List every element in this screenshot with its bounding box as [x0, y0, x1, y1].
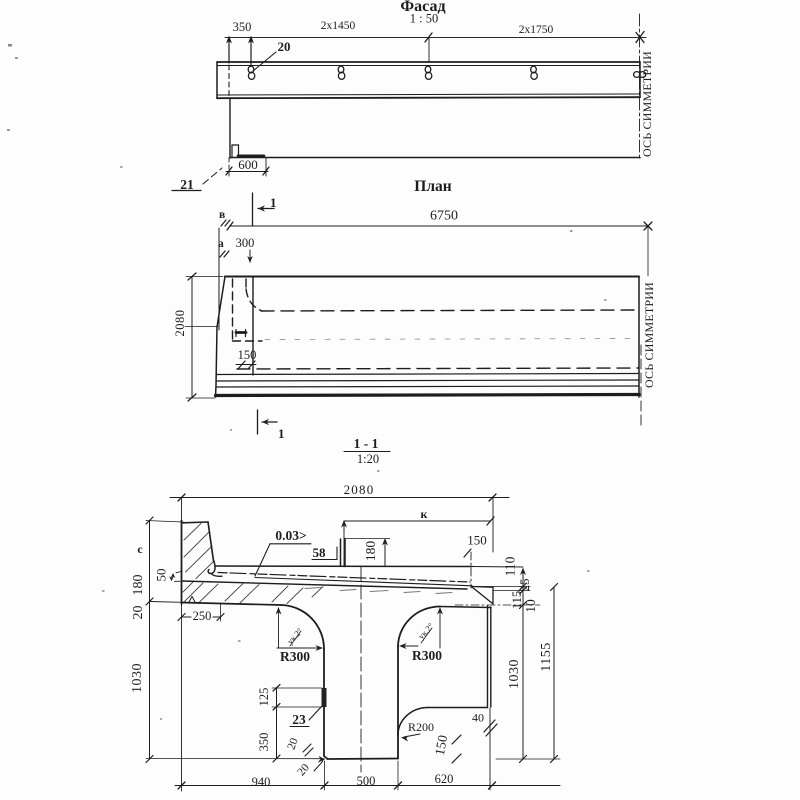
svg-text:20: 20: [131, 606, 146, 620]
svg-text:20: 20: [278, 39, 291, 54]
svg-text:1155: 1155: [539, 642, 554, 671]
svg-text:в: в: [219, 209, 225, 221]
svg-text:ОСЬ СИММЕТРИИ: ОСЬ СИММЕТРИИ: [642, 282, 656, 388]
svg-text:25: 25: [517, 579, 532, 592]
svg-text:300: 300: [236, 236, 255, 250]
svg-text:50: 50: [154, 569, 169, 582]
svg-text:ОСЬ СИММЕТРИИ: ОСЬ СИММЕТРИИ: [640, 51, 654, 157]
svg-text:1:20: 1:20: [357, 452, 379, 466]
svg-text:250: 250: [193, 609, 212, 623]
svg-text:2080: 2080: [173, 310, 187, 337]
svg-text:125: 125: [257, 688, 271, 707]
svg-text:R300: R300: [280, 649, 310, 664]
svg-text:620: 620: [435, 772, 454, 786]
svg-text:40: 40: [472, 711, 484, 725]
svg-text:R200: R200: [408, 720, 434, 734]
svg-text:1: 1: [278, 426, 285, 441]
svg-text:ук.2°: ук.2°: [416, 621, 436, 641]
svg-text:R300: R300: [412, 648, 442, 663]
svg-text:План: План: [414, 178, 452, 195]
svg-text:350: 350: [257, 733, 271, 752]
svg-text:1030: 1030: [130, 663, 145, 693]
svg-text:0.03>: 0.03>: [275, 528, 306, 543]
svg-text:180: 180: [131, 575, 146, 596]
svg-text:115: 115: [510, 591, 524, 609]
svg-text:23: 23: [292, 712, 306, 727]
svg-text:350: 350: [233, 20, 252, 34]
svg-text:1: 1: [270, 195, 277, 210]
svg-text:600: 600: [238, 157, 258, 172]
svg-text:1030: 1030: [507, 659, 522, 689]
svg-text:10: 10: [523, 599, 538, 613]
svg-text:20: 20: [295, 762, 312, 779]
svg-text:20: 20: [286, 736, 301, 751]
svg-text:940: 940: [252, 775, 271, 789]
svg-text:к: к: [421, 507, 428, 521]
svg-text:58: 58: [313, 545, 327, 560]
svg-text:150: 150: [432, 734, 450, 757]
svg-text:1 : 50: 1 : 50: [410, 12, 438, 26]
svg-text:6750: 6750: [430, 209, 458, 224]
svg-text:2x1750: 2x1750: [519, 24, 554, 36]
svg-text:2080: 2080: [344, 482, 375, 497]
svg-text:500: 500: [357, 774, 376, 788]
svg-text:21: 21: [180, 177, 194, 192]
svg-text:150: 150: [467, 533, 487, 548]
svg-text:110: 110: [503, 556, 518, 576]
svg-text:180: 180: [363, 541, 378, 562]
svg-text:2x1450: 2x1450: [321, 20, 356, 32]
svg-text:ук.2°: ук.2°: [285, 626, 305, 646]
svg-text:1 - 1: 1 - 1: [354, 436, 379, 451]
svg-text:c: c: [137, 542, 143, 556]
